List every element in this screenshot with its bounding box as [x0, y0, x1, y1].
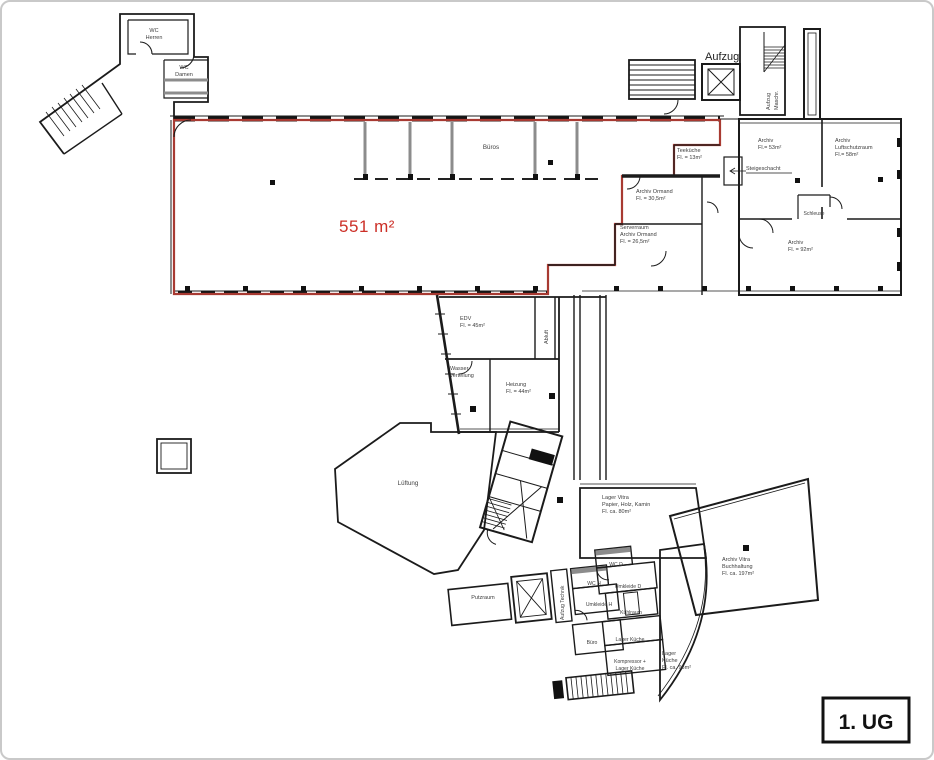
- floorplan-svg: WC Herren WC Damen 551 m² Büros: [2, 2, 934, 760]
- label-wasserverteilung: Wasser-: [450, 366, 470, 372]
- service-cluster-walls: [446, 544, 668, 711]
- label-lager-kueche-gross-2: Küche: [662, 658, 678, 664]
- label-aufzug-maschr-2: Maschr.: [774, 90, 780, 110]
- label-wc-herren-2: Herren: [146, 35, 163, 41]
- label-edv-2: Fl. = 45m²: [460, 323, 485, 329]
- teekueche-server-walls: [548, 145, 720, 295]
- main-hall: [170, 116, 724, 294]
- office-partitions: [354, 122, 602, 180]
- level-badge: 1. UG: [823, 698, 909, 742]
- label-heizung: Heizung: [506, 382, 526, 388]
- label-lager-vitra: Lager Vitra: [602, 495, 630, 501]
- label-serverraum: Serverraum: [620, 225, 649, 231]
- label-kuehlraum: Kühlraum: [620, 610, 642, 616]
- label-serverraum-3: Fl. = 26,5m²: [620, 239, 650, 245]
- lager-kueche-gross-walls: [658, 544, 707, 700]
- label-archiv-vitra-3: Fl. ca. 197m²: [722, 571, 754, 577]
- label-buero: Büro: [587, 640, 598, 646]
- elevator-core: [629, 27, 820, 119]
- label-wc-h: WC H: [587, 581, 601, 587]
- label-archiv-53-2: Fl.= 53m²: [758, 145, 782, 151]
- label-archiv-92: Archiv: [788, 240, 804, 246]
- floorplan-page: WC Herren WC Damen 551 m² Büros: [0, 0, 934, 760]
- label-archiv-ormand-2: Fl. = 30,5m²: [636, 196, 666, 202]
- label-wc-herren: WC: [149, 28, 158, 34]
- label-main-area: 551 m²: [339, 217, 395, 236]
- label-lager-kueche-gross-3: Fl. ca. 98m²: [662, 665, 691, 671]
- lueftung-walls: [335, 423, 496, 574]
- label-luftschutzraum-3: Fl.= 58m²: [835, 152, 859, 158]
- column-dot: [557, 497, 563, 503]
- label-putzraum: Putzraum: [471, 595, 495, 601]
- wc-wing-walls: [40, 14, 208, 154]
- label-archiv-92-2: Fl. = 92m²: [788, 247, 813, 253]
- label-archiv-53: Archiv: [758, 138, 774, 144]
- label-kompressor-2: Lager Küche: [616, 666, 645, 672]
- label-wasserverteilung-2: verteilung: [450, 373, 474, 379]
- label-serverraum-2: Archiv Ormand: [620, 232, 657, 238]
- label-lager-vitra-2: Papier, Holz, Kamin: [602, 502, 650, 508]
- label-lager-vitra-3: Fl. ca. 80m²: [602, 509, 631, 515]
- detached-shaft-square: [157, 439, 191, 473]
- label-wc-damen-2: Damen: [175, 72, 193, 78]
- level-badge-label: 1. UG: [839, 711, 894, 734]
- label-umkleide-h: Umkleide H: [586, 602, 613, 608]
- label-wc-d: WC D: [609, 562, 623, 568]
- label-archiv-vitra-2: Buchhaltung: [722, 564, 753, 570]
- label-heizung-2: Fl. = 44m²: [506, 389, 531, 395]
- label-bueros: Büros: [483, 144, 499, 151]
- label-teekueche-2: Fl. = 13m²: [677, 155, 702, 161]
- label-umkleide-d: Umkleide D: [615, 584, 642, 590]
- label-kompressor: Kompressor +: [614, 659, 646, 665]
- label-lager-kueche-gross: Lager: [662, 651, 676, 657]
- label-teekueche: Teeküche: [677, 148, 701, 154]
- label-lager-kueche: Lager Küche: [616, 637, 645, 643]
- label-steigeschacht: Steigeschacht: [746, 166, 781, 172]
- label-luftschutzraum: Archiv: [835, 138, 851, 144]
- label-abluft: Abluft: [544, 329, 550, 344]
- label-aufzug: Aufzug: [705, 51, 739, 63]
- label-archiv-vitra: Archiv Vitra: [722, 557, 751, 563]
- label-lueftung: Lüftung: [398, 480, 419, 487]
- label-aufzug-technik: Aufzug Technik: [560, 585, 566, 620]
- label-aufzug-maschr: Aufzug: [766, 93, 772, 110]
- label-luftschutzraum-2: Luftschutzraum: [835, 145, 873, 151]
- label-schleuse: Schleuse: [804, 211, 825, 217]
- label-archiv-ormand: Archiv Ormand: [636, 189, 673, 195]
- label-edv: EDV: [460, 316, 472, 322]
- archiv-vitra-walls: [670, 479, 818, 615]
- label-wc-damen: WC: [179, 65, 188, 71]
